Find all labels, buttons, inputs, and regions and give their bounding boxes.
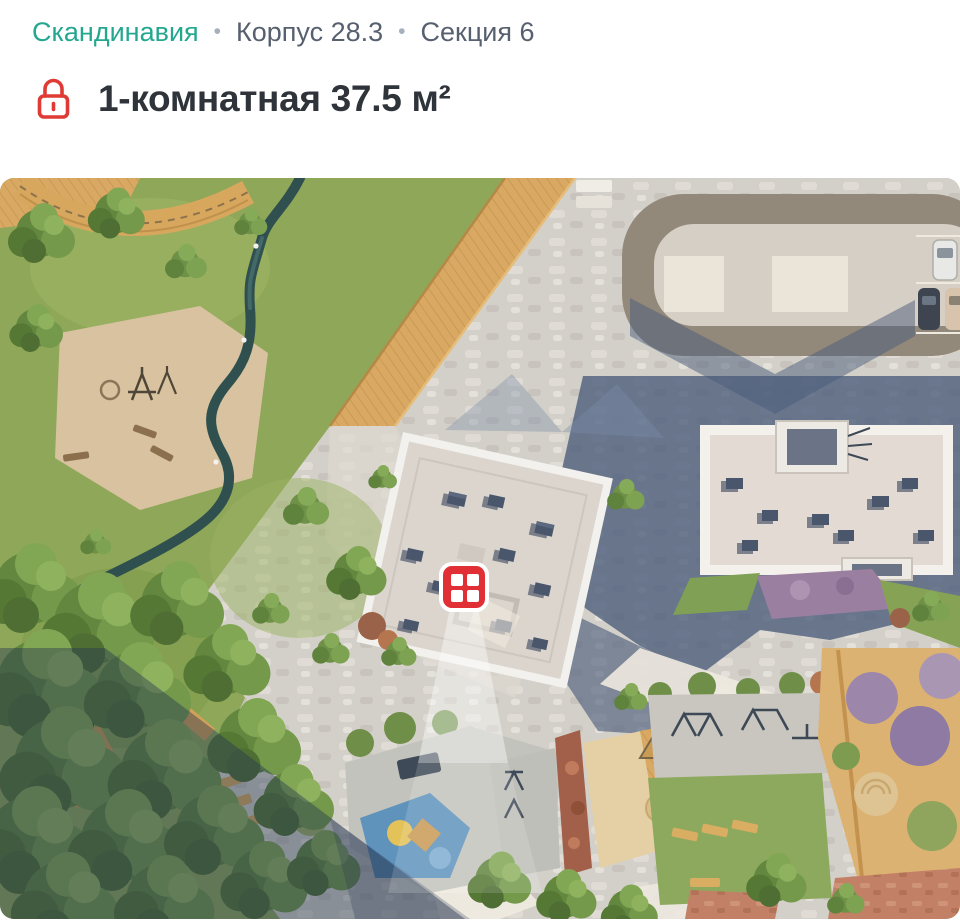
breadcrumb: Скандинавия • Корпус 28.3 • Секция 6 (32, 16, 928, 48)
page-header: Скандинавия • Корпус 28.3 • Секция 6 1-к… (0, 0, 960, 122)
listing-page: Скандинавия • Корпус 28.3 • Секция 6 1-к… (0, 0, 960, 923)
breadcrumb-separator-icon: • (214, 19, 221, 44)
breadcrumb-project-link[interactable]: Скандинавия (32, 16, 199, 48)
title-row: 1-комнатная 37.5 м² (32, 76, 928, 122)
lock-icon (32, 76, 74, 122)
page-title: 1-комнатная 37.5 м² (98, 78, 451, 120)
masterplan-map[interactable] (0, 178, 960, 919)
neighbor-building-roof (700, 421, 953, 580)
breadcrumb-building: Корпус 28.3 (236, 16, 383, 48)
apartment-marker[interactable] (441, 564, 487, 610)
breadcrumb-section: Секция 6 (421, 16, 535, 48)
masterplan-render[interactable] (0, 178, 960, 919)
breadcrumb-separator-icon: • (398, 19, 405, 44)
